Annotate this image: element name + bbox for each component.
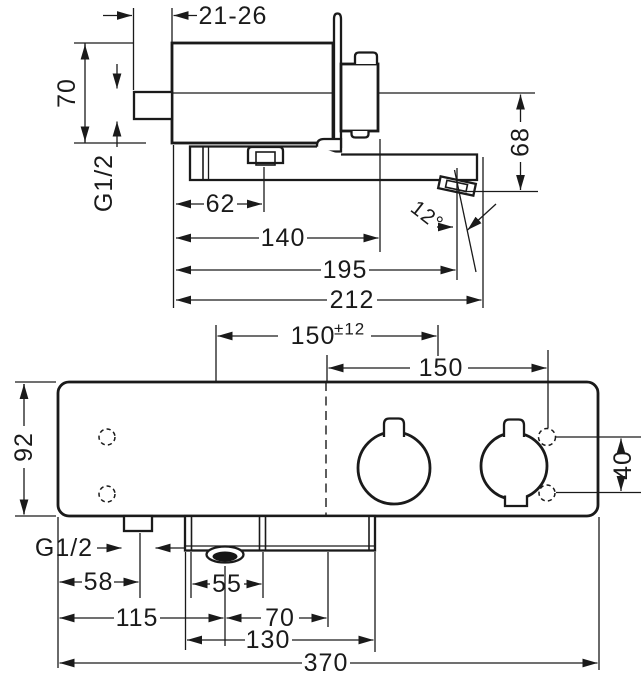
handle-right-grip <box>504 420 524 438</box>
handle-right <box>481 433 547 499</box>
handle-bottom-grip-side <box>352 131 369 138</box>
dim-connection-tolerance-label: ±12 <box>334 320 365 339</box>
dim-spout-projection-label: 212 <box>330 286 375 314</box>
dim-spout-width-label: 55 <box>212 570 242 598</box>
front-view: 150 ±12 150 92 40 <box>10 320 641 678</box>
callout-thread-side: G1/2 <box>90 64 118 212</box>
dim-aerator-offset-label: 115 <box>116 604 159 632</box>
thread-label-side: G1/2 <box>90 154 118 212</box>
dim-port-spacing-label: 40 <box>609 450 637 480</box>
wall-union-side <box>134 92 172 119</box>
dim-body-height-front: 92 <box>10 382 56 516</box>
handle-left-grip <box>384 419 404 438</box>
dim-body-height-side: 70 <box>53 43 146 143</box>
drawing-sheet: 21-26 70 G1/2 62 <box>0 0 643 694</box>
dim-body-height-side-label: 70 <box>53 78 81 108</box>
handle-top-grip-side <box>355 53 377 65</box>
handle-right-safety-stop <box>505 496 527 507</box>
handle-side <box>341 64 378 131</box>
dim-connection-spacing-label: 150 <box>291 322 336 350</box>
dim-base-width-label: 130 <box>246 626 291 654</box>
aerator-front-mesh <box>213 552 238 562</box>
dim-port-offset-label: 150 <box>419 354 464 382</box>
technical-drawing: 21-26 70 G1/2 62 <box>0 0 643 694</box>
inlet-nipple-front <box>124 516 152 531</box>
base-box-front <box>185 516 375 551</box>
dim-body-width-label: 370 <box>304 649 349 677</box>
dim-handle-projection-label: 140 <box>261 224 306 252</box>
dim-outlet-projection-label: 195 <box>323 256 368 284</box>
thread-label-front: G1/2 <box>35 534 93 562</box>
handle-left <box>358 432 430 504</box>
dim-spout-angle-label: 12° <box>406 196 448 236</box>
dim-body-height-front-label: 92 <box>10 432 38 462</box>
dim-outlet-height-label: 68 <box>507 127 535 157</box>
side-view: 21-26 70 G1/2 62 <box>53 2 538 314</box>
dim-slider-offset-label: 62 <box>206 190 236 218</box>
dim-fastening-depth-label: 21-26 <box>199 2 268 30</box>
slider-clamp-outer <box>248 147 283 163</box>
dim-inlet-offset-label: 58 <box>84 568 114 596</box>
